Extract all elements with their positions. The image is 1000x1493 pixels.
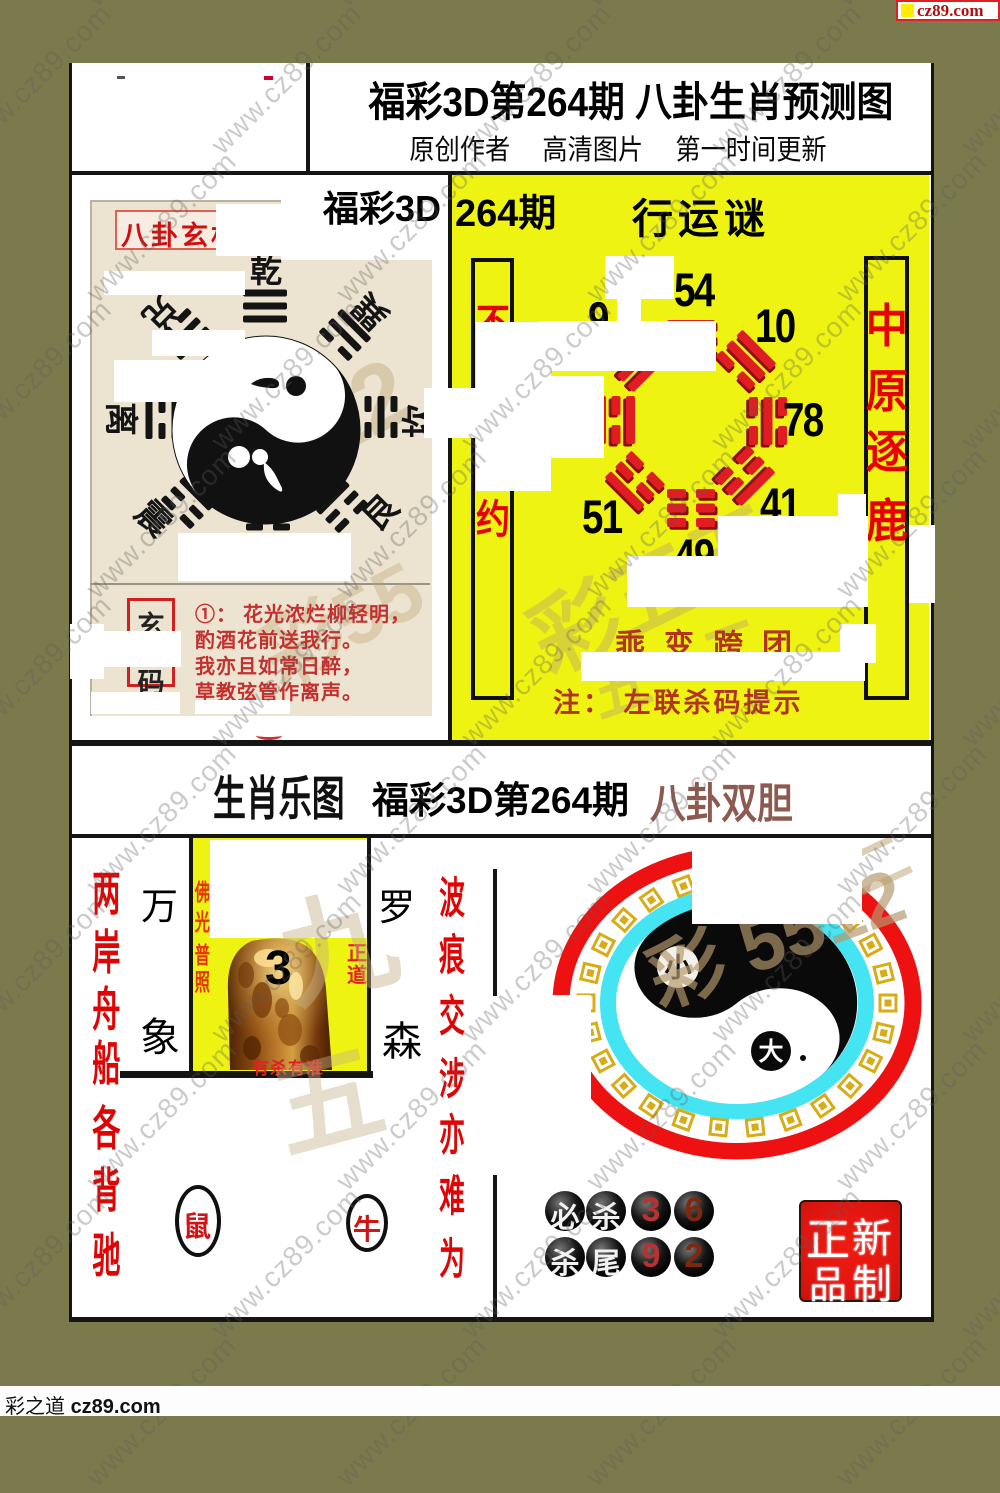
svg-text:艮: 艮 xyxy=(356,487,408,539)
svg-text:小: 小 xyxy=(665,953,692,983)
svg-text:大: 大 xyxy=(758,1038,783,1066)
svg-text:离: 离 xyxy=(101,402,140,436)
svg-text:乾: 乾 xyxy=(250,253,282,289)
